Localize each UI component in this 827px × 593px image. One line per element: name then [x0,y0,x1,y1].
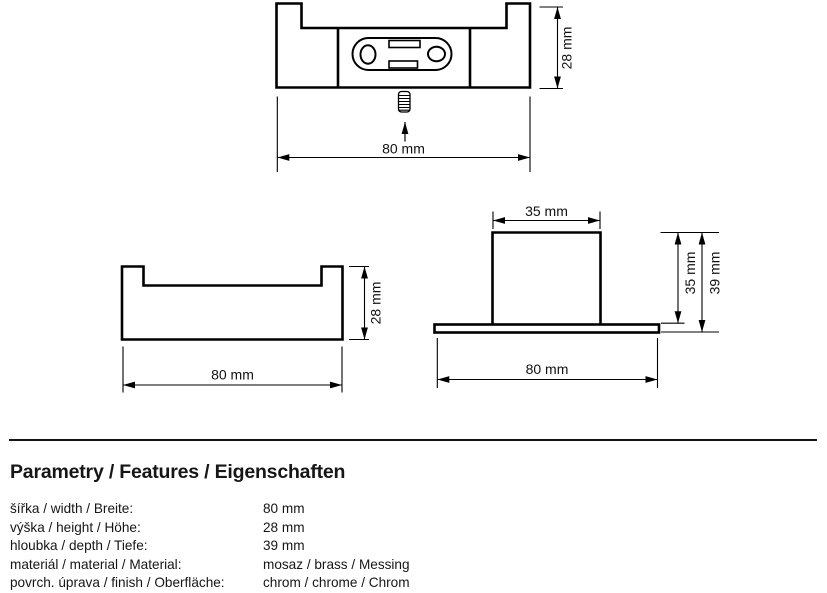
spec-value-width: 80 mm [263,500,410,519]
front-view-width-label: 80 mm [211,367,254,383]
front-view-width-dimension: 80 mm [123,347,342,393]
spec-label-width: šířka / width / Breite: [10,500,263,519]
spec-value-material: mosaz / brass / Messing [263,556,410,575]
side-view-block [493,233,601,325]
side-view-block-width-dimension: 35 mm [493,203,600,229]
spec-label-material: materiál / material / Material: [10,556,263,575]
top-view-width-label: 80 mm [382,141,425,157]
top-view: 80 mm 28 mm [277,4,575,173]
top-view-height-dimension: 28 mm [540,7,575,89]
spec-table: šířka / width / Breite: 80 mm výška / he… [10,500,410,593]
side-view-base-width-label: 80 mm [526,361,569,377]
spec-value-height: 28 mm [263,519,410,538]
side-view-block-width-label: 35 mm [525,203,568,219]
side-view-base-width-dimension: 80 mm [437,338,657,388]
front-view-height-label: 28 mm [368,282,384,325]
side-view-overall-depth-label: 39 mm [707,252,723,295]
spec-label-height: výška / height / Höhe: [10,519,263,538]
top-view-lower-tab [389,61,418,68]
side-view: 35 mm 35 mm 39 mm 80 mm [435,203,723,388]
spec-value-depth: 39 mm [263,537,410,556]
front-view-height-dimension: 28 mm [349,267,384,340]
side-view-block-height-label: 35 mm [682,252,698,295]
technical-drawing-canvas: 80 mm 28 mm 28 mm 80 mm 35 mm [0,0,827,445]
spec-label-depth: hloubka / depth / Tiefe: [10,537,263,556]
top-view-height-label: 28 mm [559,27,575,70]
front-view-outline [122,267,343,340]
grub-screw-icon [399,92,411,142]
side-view-base-plate [435,325,660,333]
spec-label-finish: povrch. úprava / finish / Oberfläche: [10,574,263,593]
section-divider [9,439,817,441]
specs-heading: Parametry / Features / Eigenschaften [10,461,345,484]
front-view: 28 mm 80 mm [122,267,384,393]
spec-value-finish: chrom / chrome / Chrom [263,574,410,593]
top-view-upper-tab [389,41,420,48]
